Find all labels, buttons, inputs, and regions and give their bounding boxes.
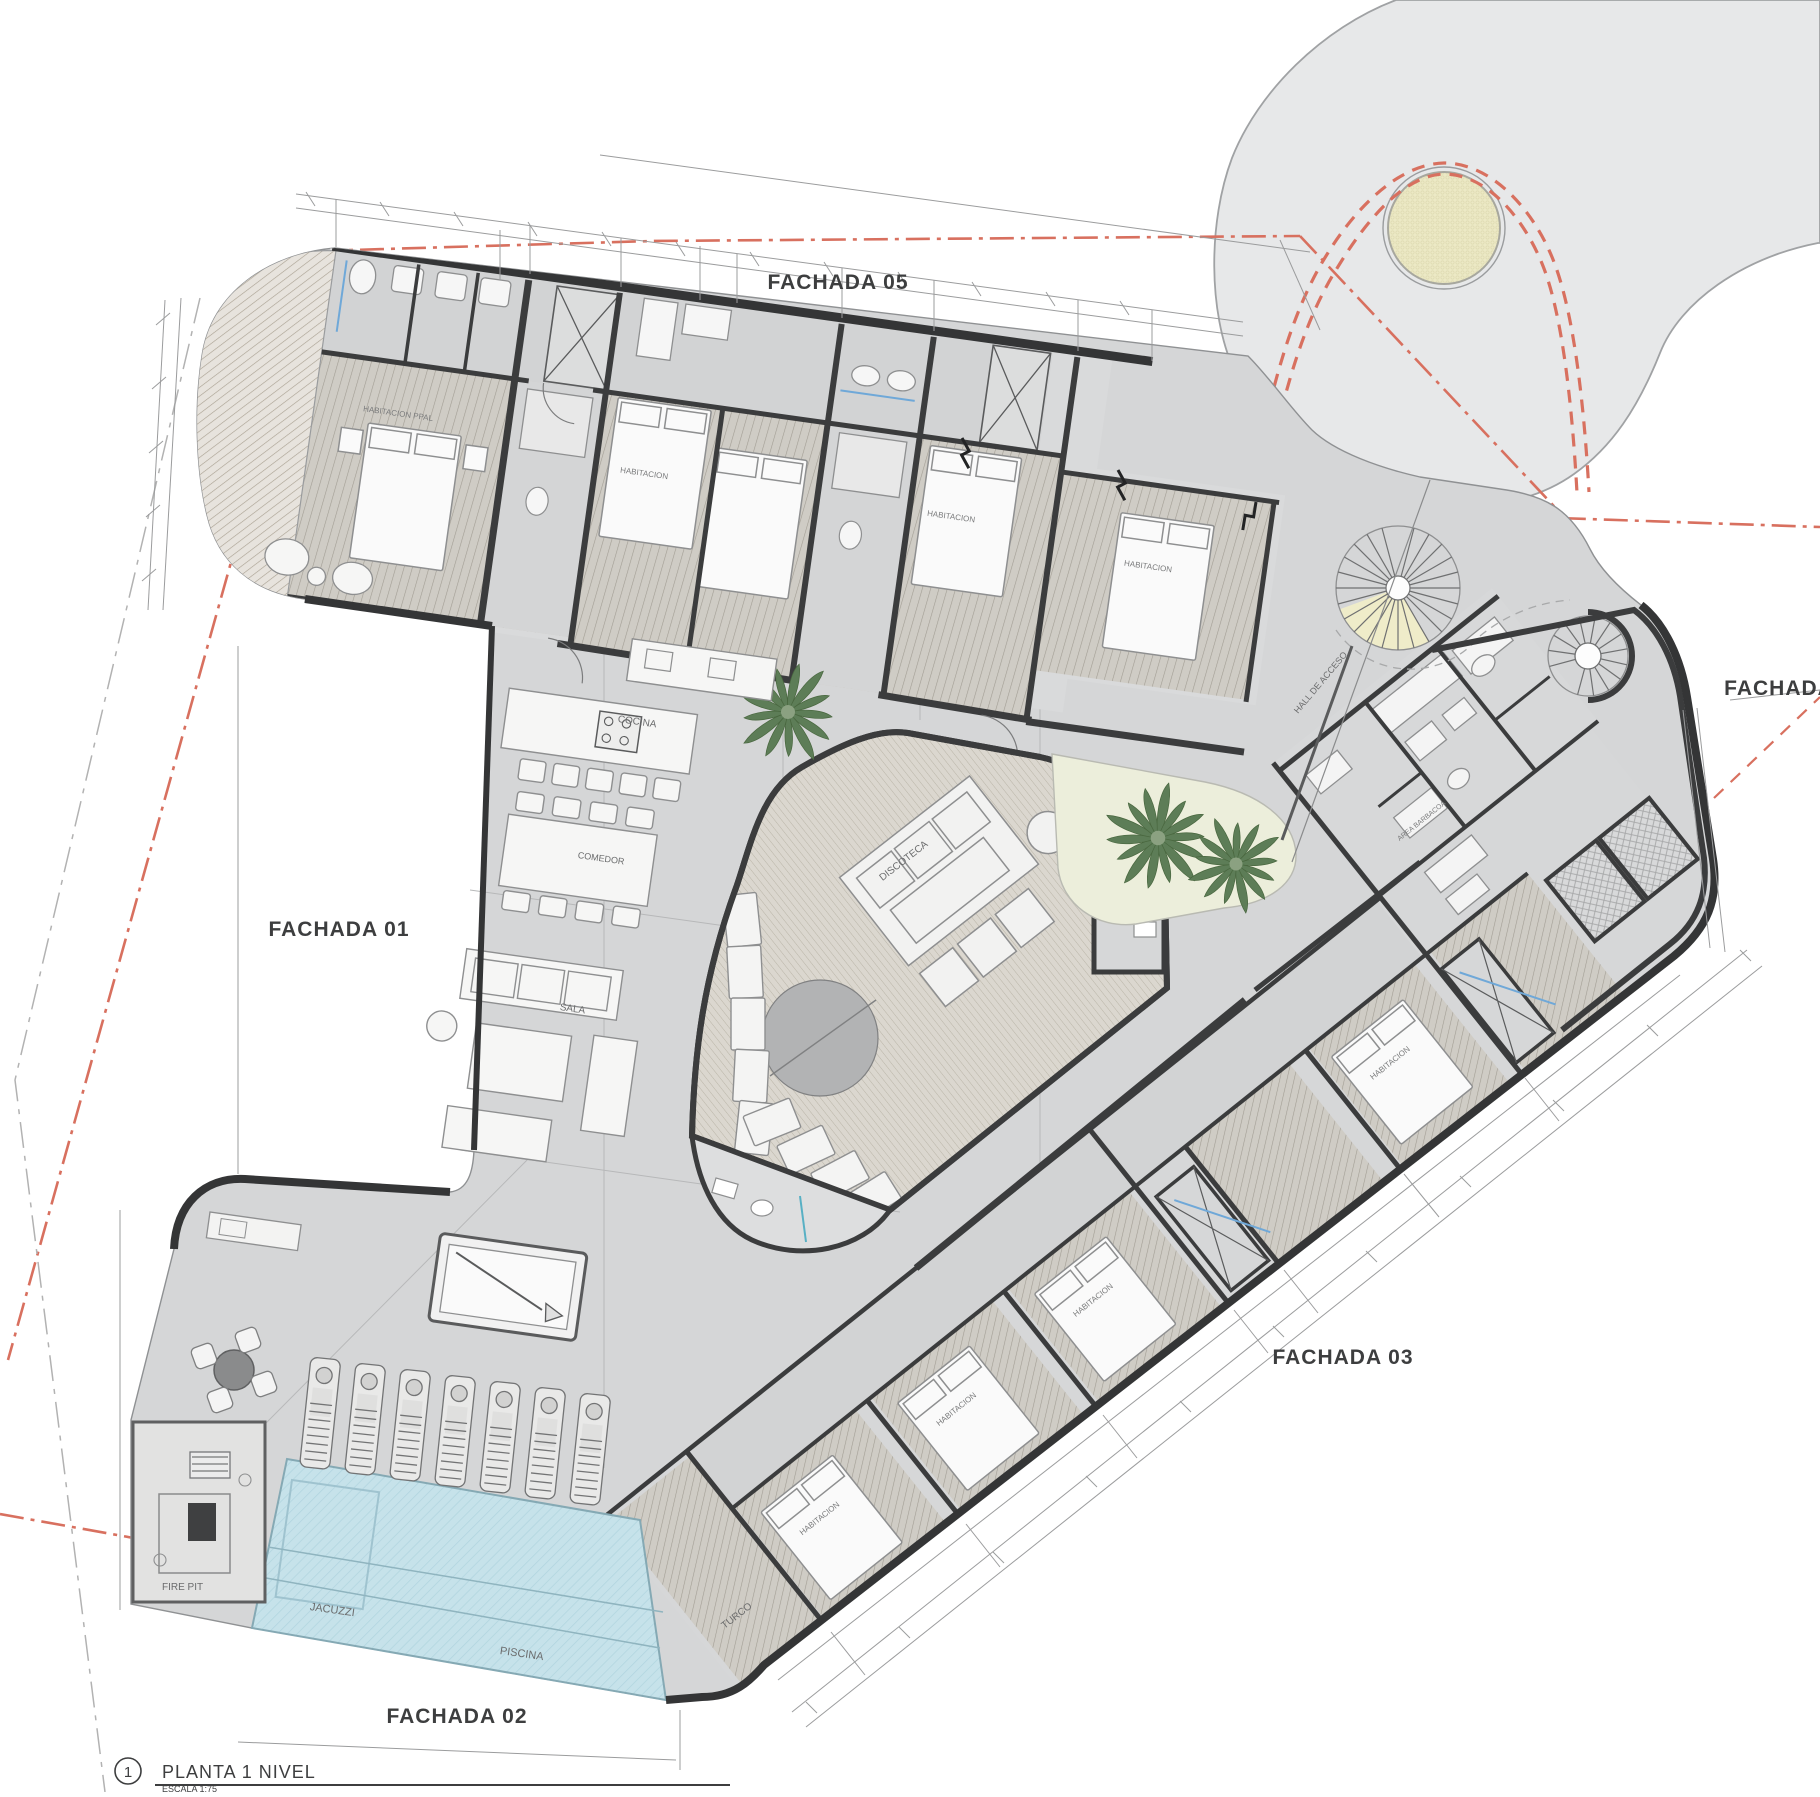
svg-text:1: 1 <box>124 1764 132 1781</box>
svg-text:PLANTA 1 NIVEL: PLANTA 1 NIVEL <box>162 1762 316 1782</box>
svg-text:FACHADA 02: FACHADA 02 <box>386 1705 527 1728</box>
svg-text:FIRE PIT: FIRE PIT <box>162 1582 203 1593</box>
svg-text:FACHADA 01: FACHADA 01 <box>268 918 409 941</box>
svg-text:ESCALA 1:75: ESCALA 1:75 <box>162 1784 217 1792</box>
svg-text:FACHADA 03: FACHADA 03 <box>1272 1346 1413 1369</box>
svg-text:FACHADA: FACHADA <box>1724 677 1820 700</box>
svg-text:FACHADA 05: FACHADA 05 <box>767 271 908 294</box>
